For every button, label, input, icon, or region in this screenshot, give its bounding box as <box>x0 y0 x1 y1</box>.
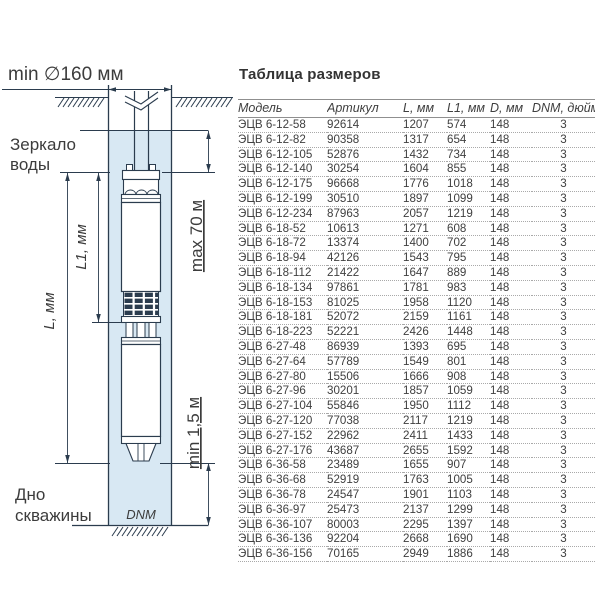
table-cell: 148 <box>490 236 532 251</box>
table-cell: 15506 <box>327 369 403 384</box>
table-cell: ЭЦВ 6-18-112 <box>238 265 327 280</box>
table-cell: ЭЦВ 6-12-199 <box>238 191 327 206</box>
table-cell: 2137 <box>403 502 447 517</box>
dim-arrow <box>65 173 70 181</box>
l1-dim-label: L1, мм <box>73 224 90 270</box>
table-row: ЭЦВ 6-36-10780003229513971483 <box>238 517 595 532</box>
table-row: ЭЦВ 6-27-645778915498011483 <box>238 354 595 369</box>
table-cell: 86939 <box>327 339 403 354</box>
table-cell: ЭЦВ 6-36-97 <box>238 502 327 517</box>
table-cell: 1950 <box>403 399 447 414</box>
dim-arrow <box>65 455 70 463</box>
table-cell: 148 <box>490 177 532 192</box>
table-cell: 148 <box>490 458 532 473</box>
table-cell: ЭЦВ 6-27-176 <box>238 443 327 458</box>
table-cell: 1549 <box>403 354 447 369</box>
table-cell: 3 <box>532 191 595 206</box>
table-cell: 574 <box>447 118 490 133</box>
table-cell: 43687 <box>327 443 403 458</box>
table-row: ЭЦВ 6-36-13692204266816901483 <box>238 532 595 547</box>
table-cell: 1543 <box>403 251 447 266</box>
table-cell: 2057 <box>403 206 447 221</box>
table-cell: 3 <box>532 295 595 310</box>
table-cell: 1018 <box>447 177 490 192</box>
table-row: ЭЦВ 6-18-18152072215911611483 <box>238 310 595 325</box>
dim-arrow <box>96 314 101 322</box>
dim-arrow <box>96 173 101 181</box>
table-cell: 1857 <box>403 384 447 399</box>
well-diagram: min ∅160 мм Зеркало воды max 70 м L1, мм… <box>0 0 235 600</box>
table-cell: 1666 <box>403 369 447 384</box>
table-cell: 21422 <box>327 265 403 280</box>
table-row: ЭЦВ 6-27-488693913936951483 <box>238 339 595 354</box>
table-cell: 23489 <box>327 458 403 473</box>
table-cell: ЭЦВ 6-36-107 <box>238 517 327 532</box>
table-cell: ЭЦВ 6-36-78 <box>238 487 327 502</box>
table-cell: 1112 <box>447 399 490 414</box>
dim-arrow <box>206 517 211 525</box>
pump-drawing <box>122 165 161 462</box>
table-cell: 3 <box>532 132 595 147</box>
table-cell: 3 <box>532 458 595 473</box>
water-level-label-line2: воды <box>10 155 50 174</box>
table-cell: 734 <box>447 147 490 162</box>
table-cell: 855 <box>447 162 490 177</box>
table-cell: 3 <box>532 251 595 266</box>
table-cell: 92614 <box>327 118 403 133</box>
table-cell: 3 <box>532 428 595 443</box>
table-cell: 148 <box>490 339 532 354</box>
table-cell: 52876 <box>327 147 403 162</box>
table-cell: ЭЦВ 6-27-64 <box>238 354 327 369</box>
table-cell: 92204 <box>327 532 403 547</box>
table-cell: 3 <box>532 399 595 414</box>
table-cell: 1005 <box>447 473 490 488</box>
table-cell: ЭЦВ 6-27-152 <box>238 428 327 443</box>
table-cell: 148 <box>490 428 532 443</box>
table-cell: 148 <box>490 221 532 236</box>
table-cell: 24547 <box>327 487 403 502</box>
table-cell: 42126 <box>327 251 403 266</box>
table-cell: 148 <box>490 295 532 310</box>
table-cell: 148 <box>490 502 532 517</box>
size-table-body: ЭЦВ 6-12-589261412075741483ЭЦВ 6-12-8290… <box>238 118 595 562</box>
table-cell: 1433 <box>447 428 490 443</box>
table-cell: 25473 <box>327 502 403 517</box>
table-cell: ЭЦВ 6-18-223 <box>238 325 327 340</box>
table-cell: 148 <box>490 265 532 280</box>
table-cell: 3 <box>532 265 595 280</box>
column-header: D, мм <box>490 100 532 118</box>
table-cell: 983 <box>447 280 490 295</box>
table-row: ЭЦВ 6-18-944212615437951483 <box>238 251 595 266</box>
size-table: МодельАртикулL, ммL1, ммD, ммDNM, дюйм Э… <box>238 99 595 562</box>
table-cell: 3 <box>532 280 595 295</box>
table-row: ЭЦВ 6-12-23487963205712191483 <box>238 206 595 221</box>
well-bottom-label-line2: скважины <box>15 506 92 525</box>
table-cell: 1099 <box>447 191 490 206</box>
table-cell: ЭЦВ 6-18-181 <box>238 310 327 325</box>
table-row: ЭЦВ 6-18-15381025195811201483 <box>238 295 595 310</box>
table-cell: 3 <box>532 310 595 325</box>
table-cell: 1120 <box>447 295 490 310</box>
table-cell: 96668 <box>327 177 403 192</box>
column-header: L, мм <box>403 100 447 118</box>
table-row: ЭЦВ 6-27-10455846195011121483 <box>238 399 595 414</box>
table-cell: 1400 <box>403 236 447 251</box>
table-cell: 148 <box>490 399 532 414</box>
table-cell: 30510 <box>327 191 403 206</box>
table-cell: 1219 <box>447 413 490 428</box>
table-cell: 3 <box>532 502 595 517</box>
table-cell: 1448 <box>447 325 490 340</box>
table-cell: 908 <box>447 369 490 384</box>
table-cell: 795 <box>447 251 490 266</box>
table-row: ЭЦВ 6-12-829035813176541483 <box>238 132 595 147</box>
table-cell: 1901 <box>403 487 447 502</box>
table-row: ЭЦВ 6-27-15222962241114331483 <box>238 428 595 443</box>
dim-arrow <box>206 164 211 172</box>
table-cell: ЭЦВ 6-27-96 <box>238 384 327 399</box>
table-row: ЭЦВ 6-12-1403025416048551483 <box>238 162 595 177</box>
table-cell: 1271 <box>403 221 447 236</box>
table-cell: 148 <box>490 132 532 147</box>
table-cell: 97861 <box>327 280 403 295</box>
l-dim-label: L, мм <box>41 292 58 329</box>
table-cell: 148 <box>490 443 532 458</box>
table-row: ЭЦВ 6-27-801550616669081483 <box>238 369 595 384</box>
bottom-hatch <box>112 527 168 536</box>
table-cell: 148 <box>490 517 532 532</box>
table-cell: 1690 <box>447 532 490 547</box>
table-cell: 1776 <box>403 177 447 192</box>
column-header: Артикул <box>327 100 403 118</box>
table-cell: 1299 <box>447 502 490 517</box>
table-cell: 2949 <box>403 547 447 562</box>
table-cell: ЭЦВ 6-18-134 <box>238 280 327 295</box>
table-cell: 3 <box>532 118 595 133</box>
table-row: ЭЦВ 6-12-589261412075741483 <box>238 118 595 133</box>
table-cell: 1655 <box>403 458 447 473</box>
table-cell: ЭЦВ 6-36-68 <box>238 473 327 488</box>
table-cell: 3 <box>532 547 595 562</box>
water-level-label-line1: Зеркало <box>10 135 76 154</box>
table-cell: 148 <box>490 280 532 295</box>
table-cell: 1161 <box>447 310 490 325</box>
table-cell: 3 <box>532 487 595 502</box>
table-cell: ЭЦВ 6-12-175 <box>238 177 327 192</box>
dim-arrow <box>109 87 117 92</box>
table-cell: 148 <box>490 251 532 266</box>
table-cell: 30201 <box>327 384 403 399</box>
table-cell: ЭЦВ 6-27-104 <box>238 399 327 414</box>
table-cell: 3 <box>532 517 595 532</box>
table-cell: 52919 <box>327 473 403 488</box>
table-cell: 10613 <box>327 221 403 236</box>
table-cell: 2159 <box>403 310 447 325</box>
table-cell: ЭЦВ 6-18-94 <box>238 251 327 266</box>
table-cell: 80003 <box>327 517 403 532</box>
table-cell: 608 <box>447 221 490 236</box>
table-cell: 148 <box>490 206 532 221</box>
table-row: ЭЦВ 6-18-22352221242614481483 <box>238 325 595 340</box>
table-cell: 3 <box>532 147 595 162</box>
table-row: ЭЦВ 6-12-19930510189710991483 <box>238 191 595 206</box>
table-cell: 1432 <box>403 147 447 162</box>
table-title: Таблица размеров <box>239 66 595 83</box>
table-cell: 695 <box>447 339 490 354</box>
dim-arrow <box>206 463 211 471</box>
table-cell: 77038 <box>327 413 403 428</box>
table-cell: 81025 <box>327 295 403 310</box>
table-cell: ЭЦВ 6-36-136 <box>238 532 327 547</box>
table-row: ЭЦВ 6-18-1122142216478891483 <box>238 265 595 280</box>
table-cell: 907 <box>447 458 490 473</box>
table-cell: 1897 <box>403 191 447 206</box>
table-cell: 52221 <box>327 325 403 340</box>
table-row: ЭЦВ 6-36-15670165294918861483 <box>238 547 595 562</box>
table-cell: 148 <box>490 162 532 177</box>
table-cell: 1219 <box>447 206 490 221</box>
table-cell: 2668 <box>403 532 447 547</box>
table-cell: ЭЦВ 6-12-140 <box>238 162 327 177</box>
table-row: ЭЦВ 6-27-12077038211712191483 <box>238 413 595 428</box>
column-header: L1, мм <box>447 100 490 118</box>
table-cell: 1393 <box>403 339 447 354</box>
table-cell: 1059 <box>447 384 490 399</box>
table-cell: 3 <box>532 206 595 221</box>
table-cell: 3 <box>532 384 595 399</box>
table-cell: ЭЦВ 6-18-153 <box>238 295 327 310</box>
table-cell: 1103 <box>447 487 490 502</box>
table-cell: 87963 <box>327 206 403 221</box>
table-cell: 148 <box>490 369 532 384</box>
table-cell: 1647 <box>403 265 447 280</box>
table-cell: 148 <box>490 487 532 502</box>
table-row: ЭЦВ 6-36-582348916559071483 <box>238 458 595 473</box>
table-cell: 148 <box>490 118 532 133</box>
table-cell: 3 <box>532 354 595 369</box>
table-cell: ЭЦВ 6-27-48 <box>238 339 327 354</box>
table-cell: ЭЦВ 6-12-234 <box>238 206 327 221</box>
table-cell: 801 <box>447 354 490 369</box>
table-cell: 148 <box>490 354 532 369</box>
table-cell: 1207 <box>403 118 447 133</box>
table-cell: 90358 <box>327 132 403 147</box>
table-cell: 1604 <box>403 162 447 177</box>
table-row: ЭЦВ 6-12-1055287614327341483 <box>238 147 595 162</box>
table-row: ЭЦВ 6-18-721337414007021483 <box>238 236 595 251</box>
table-cell: ЭЦВ 6-36-156 <box>238 547 327 562</box>
table-cell: 1592 <box>447 443 490 458</box>
dnm-label: DNM <box>126 507 156 522</box>
table-cell: 1886 <box>447 547 490 562</box>
table-header-row: МодельАртикулL, ммL1, ммD, ммDNM, дюйм <box>238 100 595 118</box>
table-cell: 52072 <box>327 310 403 325</box>
table-cell: 2655 <box>403 443 447 458</box>
table-cell: 148 <box>490 310 532 325</box>
table-cell: 13374 <box>327 236 403 251</box>
max-depth-label: max 70 м <box>187 200 206 272</box>
table-cell: 702 <box>447 236 490 251</box>
table-cell: ЭЦВ 6-12-58 <box>238 118 327 133</box>
table-cell: 55846 <box>327 399 403 414</box>
table-cell: 22962 <box>327 428 403 443</box>
table-cell: 3 <box>532 369 595 384</box>
table-cell: ЭЦВ 6-36-58 <box>238 458 327 473</box>
table-cell: 889 <box>447 265 490 280</box>
table-cell: 1781 <box>403 280 447 295</box>
table-cell: 3 <box>532 325 595 340</box>
table-cell: 3 <box>532 162 595 177</box>
table-cell: 148 <box>490 325 532 340</box>
table-cell: 148 <box>490 547 532 562</box>
dim-arrow <box>164 87 172 92</box>
table-cell: 148 <box>490 384 532 399</box>
table-cell: ЭЦВ 6-27-120 <box>238 413 327 428</box>
table-cell: 2411 <box>403 428 447 443</box>
table-cell: 1958 <box>403 295 447 310</box>
table-row: ЭЦВ 6-27-17643687265515921483 <box>238 443 595 458</box>
table-cell: 2426 <box>403 325 447 340</box>
table-cell: 1397 <box>447 517 490 532</box>
table-row: ЭЦВ 6-36-7824547190111031483 <box>238 487 595 502</box>
table-cell: 3 <box>532 443 595 458</box>
table-cell: ЭЦВ 6-12-82 <box>238 132 327 147</box>
table-cell: 3 <box>532 532 595 547</box>
table-row: ЭЦВ 6-18-521061312716081483 <box>238 221 595 236</box>
table-row: ЭЦВ 6-36-6852919176310051483 <box>238 473 595 488</box>
table-cell: 148 <box>490 147 532 162</box>
table-cell: 3 <box>532 413 595 428</box>
table-cell: 654 <box>447 132 490 147</box>
table-cell: 30254 <box>327 162 403 177</box>
table-cell: 2295 <box>403 517 447 532</box>
table-cell: 1763 <box>403 473 447 488</box>
table-row: ЭЦВ 6-36-9725473213712991483 <box>238 502 595 517</box>
table-cell: 3 <box>532 236 595 251</box>
table-cell: 3 <box>532 177 595 192</box>
min-bottom-label: min 1,5 м <box>184 397 203 469</box>
table-row: ЭЦВ 6-18-1349786117819831483 <box>238 280 595 295</box>
column-header: Модель <box>238 100 327 118</box>
table-cell: 148 <box>490 413 532 428</box>
column-header: DNM, дюйм <box>532 100 595 118</box>
well-bottom-label-line1: Дно <box>15 485 45 504</box>
table-cell: ЭЦВ 6-18-72 <box>238 236 327 251</box>
table-cell: ЭЦВ 6-27-80 <box>238 369 327 384</box>
dim-arrow <box>206 131 211 139</box>
table-cell: 2117 <box>403 413 447 428</box>
table-cell: 148 <box>490 532 532 547</box>
table-cell: ЭЦВ 6-12-105 <box>238 147 327 162</box>
table-row: ЭЦВ 6-12-17596668177610181483 <box>238 177 595 192</box>
table-cell: ЭЦВ 6-18-52 <box>238 221 327 236</box>
table-cell: 3 <box>532 339 595 354</box>
min-diameter-label: min ∅160 мм <box>8 64 124 85</box>
ground-hatch-right <box>176 98 232 107</box>
ground-hatch-left <box>58 98 104 107</box>
size-table-section: Таблица размеров МодельАртикулL, ммL1, м… <box>238 66 595 562</box>
table-cell: 57789 <box>327 354 403 369</box>
table-cell: 3 <box>532 221 595 236</box>
table-cell: 148 <box>490 191 532 206</box>
page: min ∅160 мм Зеркало воды max 70 м L1, мм… <box>0 0 600 600</box>
table-cell: 70165 <box>327 547 403 562</box>
table-cell: 3 <box>532 473 595 488</box>
table-cell: 148 <box>490 473 532 488</box>
table-row: ЭЦВ 6-27-9630201185710591483 <box>238 384 595 399</box>
table-cell: 1317 <box>403 132 447 147</box>
